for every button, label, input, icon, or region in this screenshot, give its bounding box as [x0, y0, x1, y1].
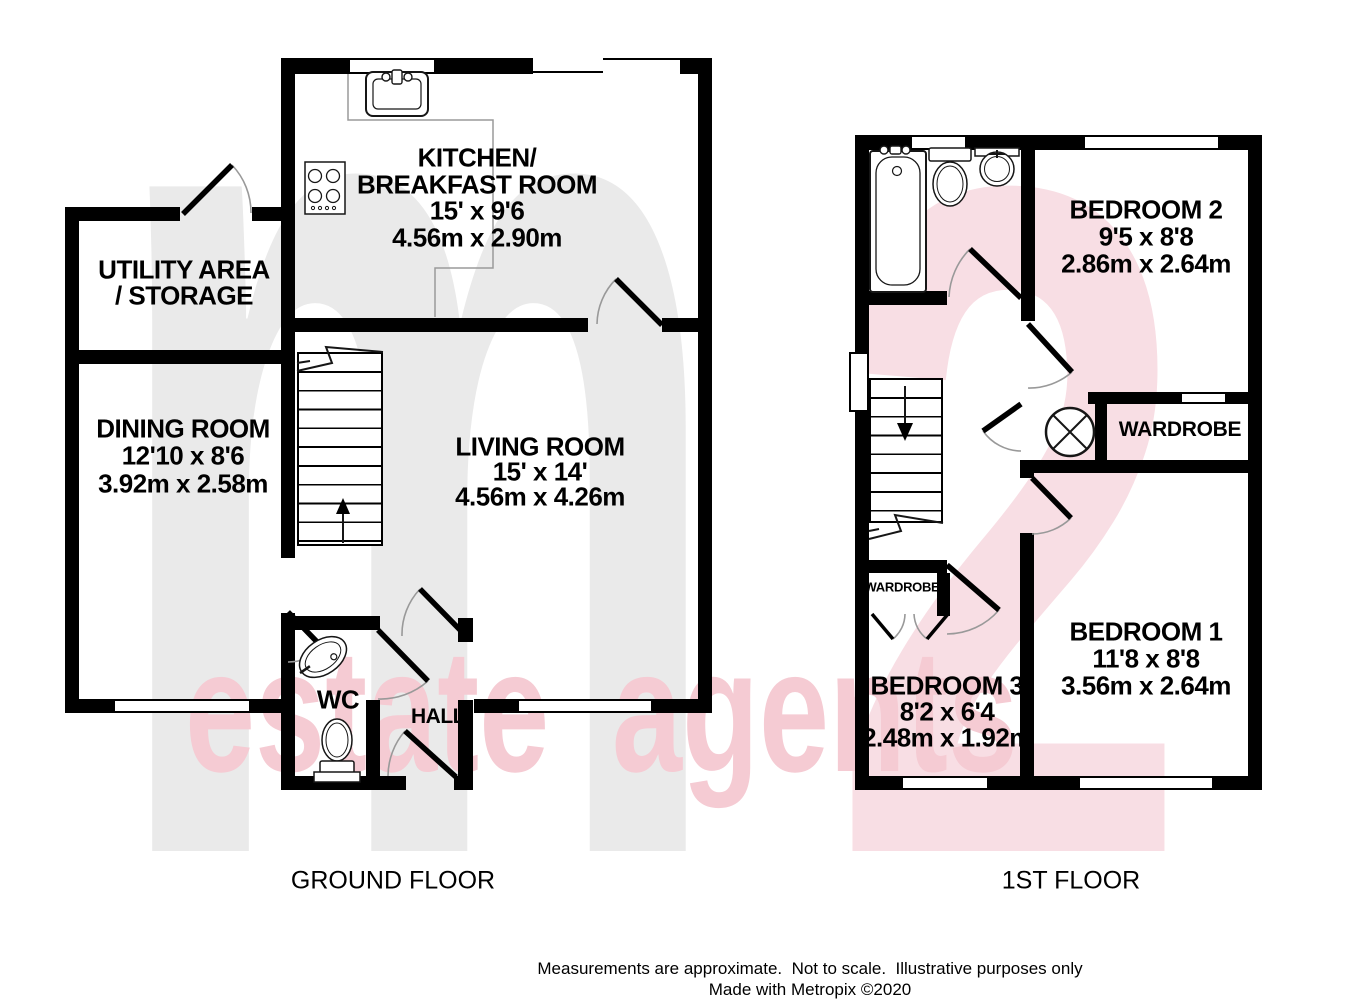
- wall: [65, 207, 180, 221]
- bedroom1-window: [1078, 776, 1214, 790]
- wall: [698, 58, 712, 713]
- bedroom1-size-metric: 3.56m x 2.64m: [1061, 671, 1231, 702]
- landing-window: [849, 352, 869, 412]
- credit-text: Made with Metropix ©2020: [709, 980, 911, 1000]
- wall: [366, 776, 406, 790]
- living-window: [517, 699, 653, 713]
- floorplan-canvas: m 2 estate agents: [0, 0, 1350, 1002]
- wall: [65, 207, 79, 713]
- staircase-ground: [297, 352, 383, 546]
- dining-window: [113, 699, 251, 713]
- utility-label: / STORAGE: [115, 281, 253, 312]
- ground-floor-title: GROUND FLOOR: [291, 867, 495, 896]
- wall-opening-line: [533, 71, 603, 73]
- wall: [65, 350, 295, 364]
- bathroom-window: [910, 135, 967, 150]
- staircase-first: [869, 378, 943, 523]
- first-floor-title: 1ST FLOOR: [1002, 867, 1140, 896]
- wall: [281, 613, 295, 790]
- wall: [281, 616, 380, 630]
- wardrobe-label: WARDROBE: [1119, 418, 1241, 442]
- bedroom3-window: [901, 776, 989, 790]
- wall: [458, 618, 473, 642]
- wall: [869, 291, 947, 305]
- bedroom3-size-metric: 2.48m x 1.92m: [862, 723, 1032, 754]
- wall-opening-line: [603, 58, 680, 60]
- wall: [1020, 460, 1034, 478]
- wall: [1095, 404, 1107, 460]
- living-size-metric: 4.56m x 4.26m: [455, 482, 625, 513]
- hall-label: HALL: [411, 705, 465, 729]
- watermark-letter-m: m: [103, 0, 729, 1002]
- bedroom2-size-metric: 2.86m x 2.64m: [1061, 249, 1231, 280]
- wall: [855, 135, 869, 790]
- wardrobe-opening: [1180, 392, 1227, 404]
- kitchen-size-metric: 4.56m x 2.90m: [392, 223, 562, 254]
- wall: [855, 560, 947, 573]
- kitchen-window: [348, 58, 436, 74]
- dining-size-imperial: 12'10 x 8'6: [122, 441, 245, 472]
- wall: [662, 318, 698, 332]
- wc-label: WC: [317, 685, 359, 716]
- wall: [293, 318, 588, 332]
- wardrobe-small-label: WARDROBE: [865, 580, 940, 595]
- wall: [1021, 148, 1035, 321]
- dining-size-metric: 3.92m x 2.58m: [98, 469, 268, 500]
- bedroom2-window: [1083, 135, 1220, 150]
- disclaimer-text: Measurements are approximate. Not to sca…: [537, 959, 1082, 979]
- wall: [454, 776, 473, 790]
- wall: [281, 58, 295, 558]
- wall: [1021, 460, 1262, 473]
